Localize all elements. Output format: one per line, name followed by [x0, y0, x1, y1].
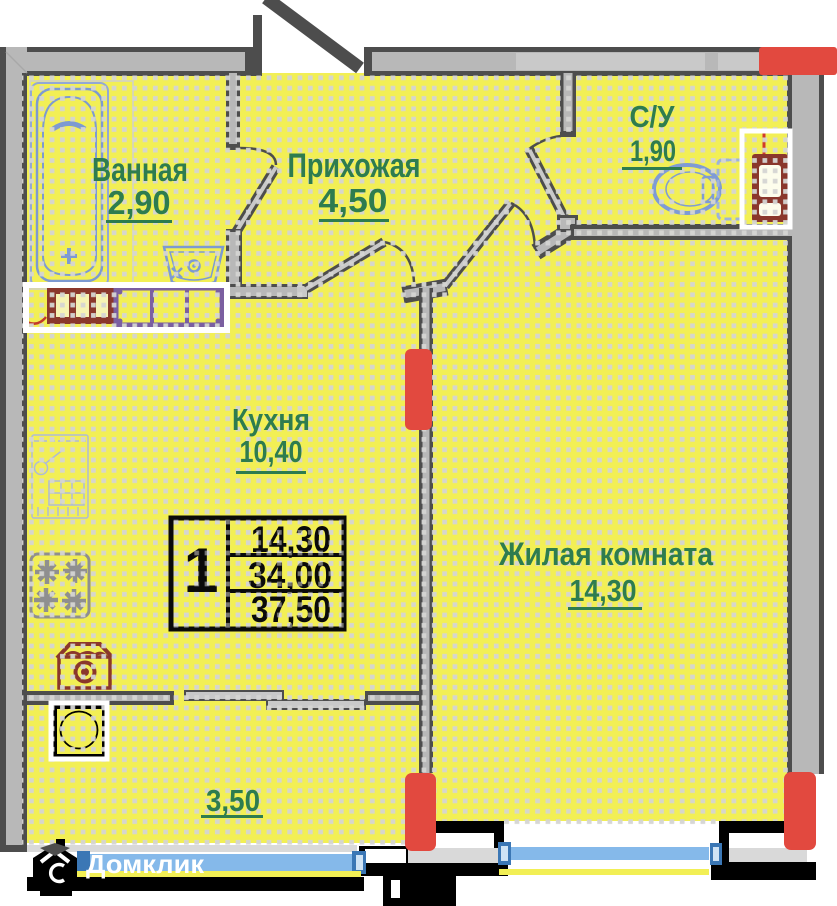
svg-text:1,90: 1,90 — [630, 135, 676, 168]
svg-text:Прихожая: Прихожая — [288, 147, 421, 185]
svg-text:С/У: С/У — [630, 99, 676, 134]
svg-text:Домклик: Домклик — [86, 849, 205, 879]
svg-text:14,30: 14,30 — [570, 573, 637, 608]
svg-text:2,90: 2,90 — [108, 184, 171, 221]
svg-text:4,50: 4,50 — [319, 182, 388, 219]
svg-text:10,40: 10,40 — [240, 434, 303, 469]
svg-text:Кухня: Кухня — [232, 402, 310, 437]
svg-text:3,50: 3,50 — [206, 783, 260, 818]
svg-text:Жилая комната: Жилая комната — [498, 536, 713, 572]
svg-text:Ванная: Ванная — [92, 151, 188, 188]
